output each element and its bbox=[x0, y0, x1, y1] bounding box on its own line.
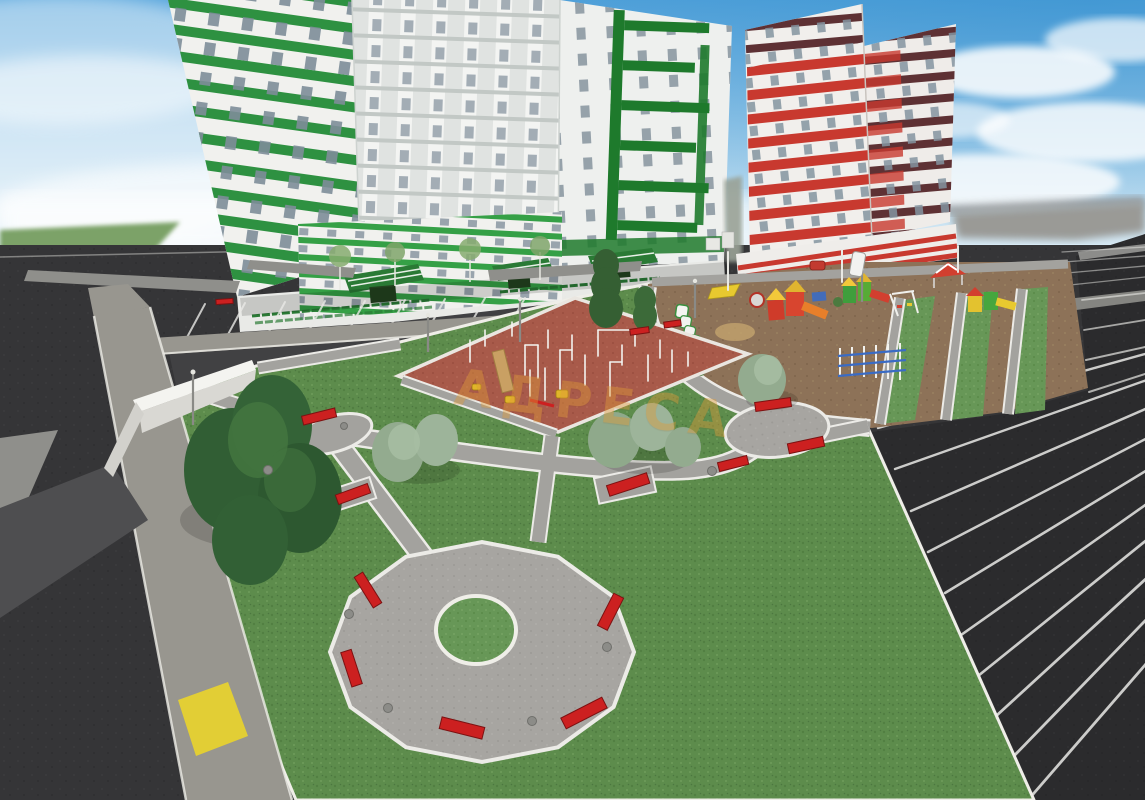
sand-pit bbox=[715, 323, 755, 341]
building-red-tower-2 bbox=[864, 24, 956, 238]
building-red-tower-1 bbox=[745, 4, 872, 258]
red-car bbox=[810, 261, 825, 270]
merry-go-round bbox=[750, 293, 764, 307]
architectural-render: АДРЕСА bbox=[0, 0, 1145, 800]
plaza-lawn-ring bbox=[436, 596, 516, 664]
